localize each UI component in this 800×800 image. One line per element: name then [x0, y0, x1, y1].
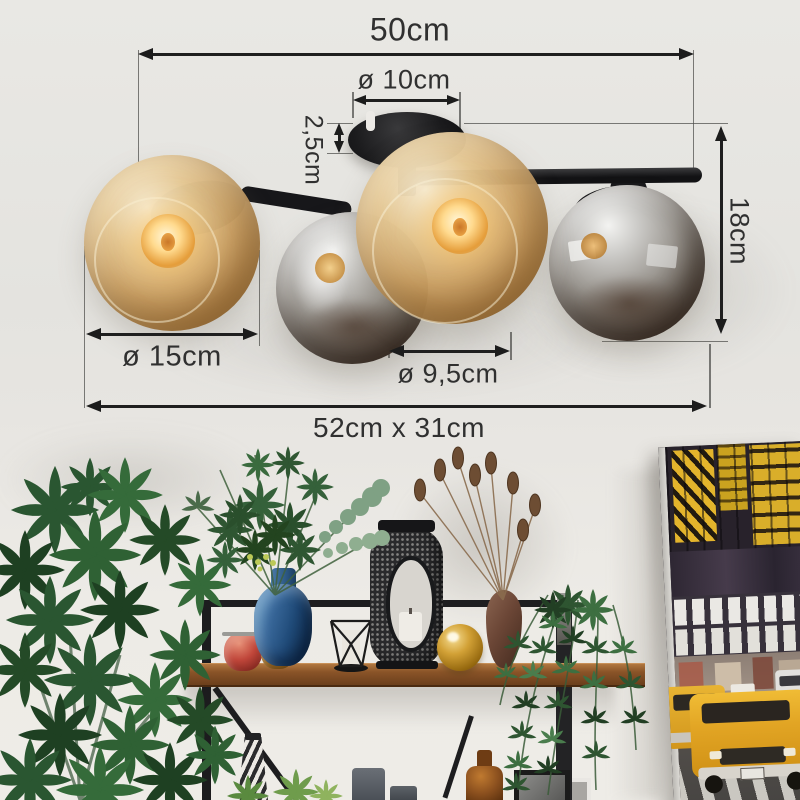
specular-highlight	[447, 632, 459, 642]
arrowhead-up	[715, 126, 727, 141]
extension-line	[259, 250, 261, 346]
globe-amber-center	[356, 132, 548, 324]
arrowhead-right	[692, 400, 707, 412]
left-plant	[0, 455, 260, 800]
dim-10cm-label: ø 10cm	[357, 65, 450, 96]
taxi-license-plate	[740, 767, 765, 780]
dim-overall-line	[99, 405, 695, 408]
arrowhead-left	[86, 328, 101, 340]
lantern-candle	[399, 612, 422, 641]
arrowhead-left	[353, 95, 366, 105]
van-windows	[779, 675, 800, 686]
extension-line	[84, 246, 86, 408]
gold-ball	[437, 624, 483, 671]
dim-18cm-line	[720, 139, 723, 321]
arrowhead-right	[679, 48, 694, 60]
canvas-billboards	[665, 441, 800, 555]
product-image: 50cm ø 10cm 2,5cm 18cm ø 15cm ø 9,5cm 52…	[0, 0, 800, 800]
taxi-headlight	[709, 751, 721, 760]
chrome-dark-base	[577, 275, 681, 331]
arrowhead-left	[138, 48, 153, 60]
dim-50cm-line	[151, 53, 681, 56]
extension-line	[138, 50, 140, 162]
poster-row	[675, 624, 800, 656]
pillar-candle-small	[390, 786, 417, 800]
taxi-main	[689, 689, 800, 786]
lamp-cable-notch	[366, 111, 375, 131]
bulb-reflection	[315, 253, 345, 283]
arrowhead-right	[447, 95, 460, 105]
extension-line	[693, 50, 695, 172]
canvas-poster-band	[672, 591, 800, 659]
arrowhead-right	[495, 345, 510, 357]
wire-candle-holder	[328, 614, 374, 674]
dim-50cm-label: 50cm	[370, 12, 450, 49]
taxi-headlight	[783, 748, 795, 757]
storefront	[752, 657, 773, 690]
dim-15cm-line	[99, 333, 245, 336]
trailing-plant	[478, 555, 653, 800]
dim-10cm-line	[363, 99, 449, 102]
filament	[161, 233, 175, 251]
arrowhead-up	[334, 123, 344, 135]
arrowhead-left	[389, 345, 404, 357]
facade-mullions	[665, 441, 800, 555]
globe-amber-left	[84, 155, 260, 331]
taxi-windshield	[701, 700, 790, 724]
candle-wick	[409, 608, 412, 614]
succulents	[268, 762, 348, 800]
dim-overall-label: 52cm x 31cm	[313, 412, 485, 444]
arrowhead-right	[243, 328, 258, 340]
glass-reflection-ring	[372, 178, 518, 324]
dim-2_5cm-label: 2,5cm	[299, 115, 328, 186]
arrowhead-down	[334, 141, 344, 153]
bulb-reflection	[581, 233, 607, 259]
arrowhead-down	[715, 319, 727, 334]
nyc-canvas-print	[658, 441, 800, 800]
poster-row	[674, 594, 800, 626]
filament	[453, 218, 467, 236]
dim-15cm-label: ø 15cm	[122, 341, 222, 374]
globe-chrome-right	[549, 185, 705, 341]
taxi-grille	[719, 746, 786, 765]
dim-9_5cm-line	[401, 350, 497, 353]
extension-line	[709, 344, 711, 408]
extension-line	[464, 123, 728, 125]
lantern-base	[376, 661, 438, 669]
pillar-candle-large	[352, 768, 385, 800]
chrome-window-reflection	[646, 243, 678, 268]
dim-9_5cm-label: ø 9,5cm	[397, 359, 498, 390]
arrowhead-left	[86, 400, 101, 412]
dim-18cm-label: 18cm	[724, 197, 755, 265]
blue-vase	[254, 584, 312, 666]
extension-line	[510, 332, 512, 360]
